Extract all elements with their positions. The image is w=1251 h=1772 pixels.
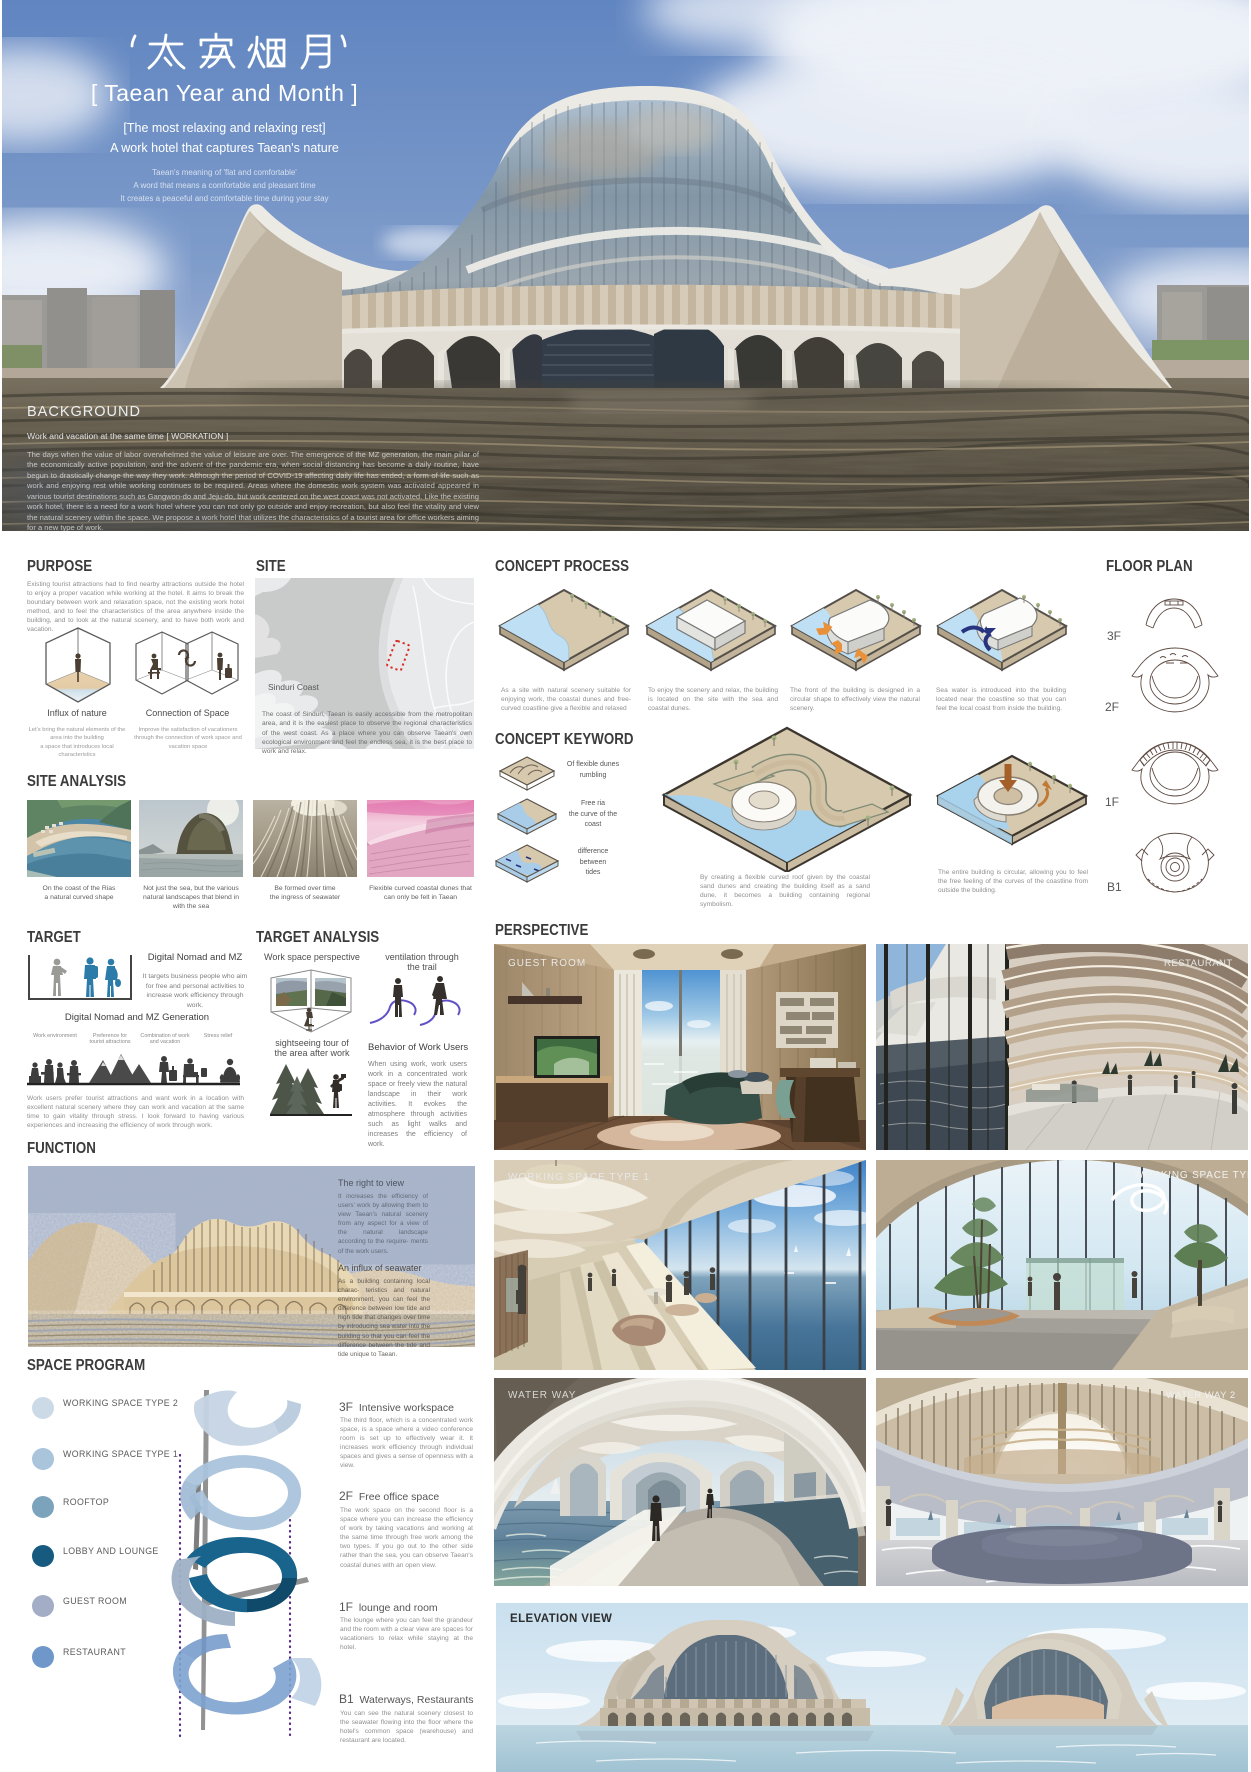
svg-text:RESTAURANT: RESTAURANT bbox=[1164, 958, 1233, 969]
svg-text:Sinduri Coast: Sinduri Coast bbox=[268, 682, 320, 692]
svg-text:WATER WAY: WATER WAY bbox=[508, 1390, 576, 1401]
svg-text:WORKING SPACE TYPE 1: WORKING SPACE TYPE 1 bbox=[508, 1172, 650, 1183]
svg-text:WATER WAY 2: WATER WAY 2 bbox=[1166, 1390, 1236, 1401]
svg-text:WORKING SPACE TYPE 2: WORKING SPACE TYPE 2 bbox=[1134, 1170, 1248, 1181]
svg-text:GUEST ROOM: GUEST ROOM bbox=[508, 958, 586, 969]
